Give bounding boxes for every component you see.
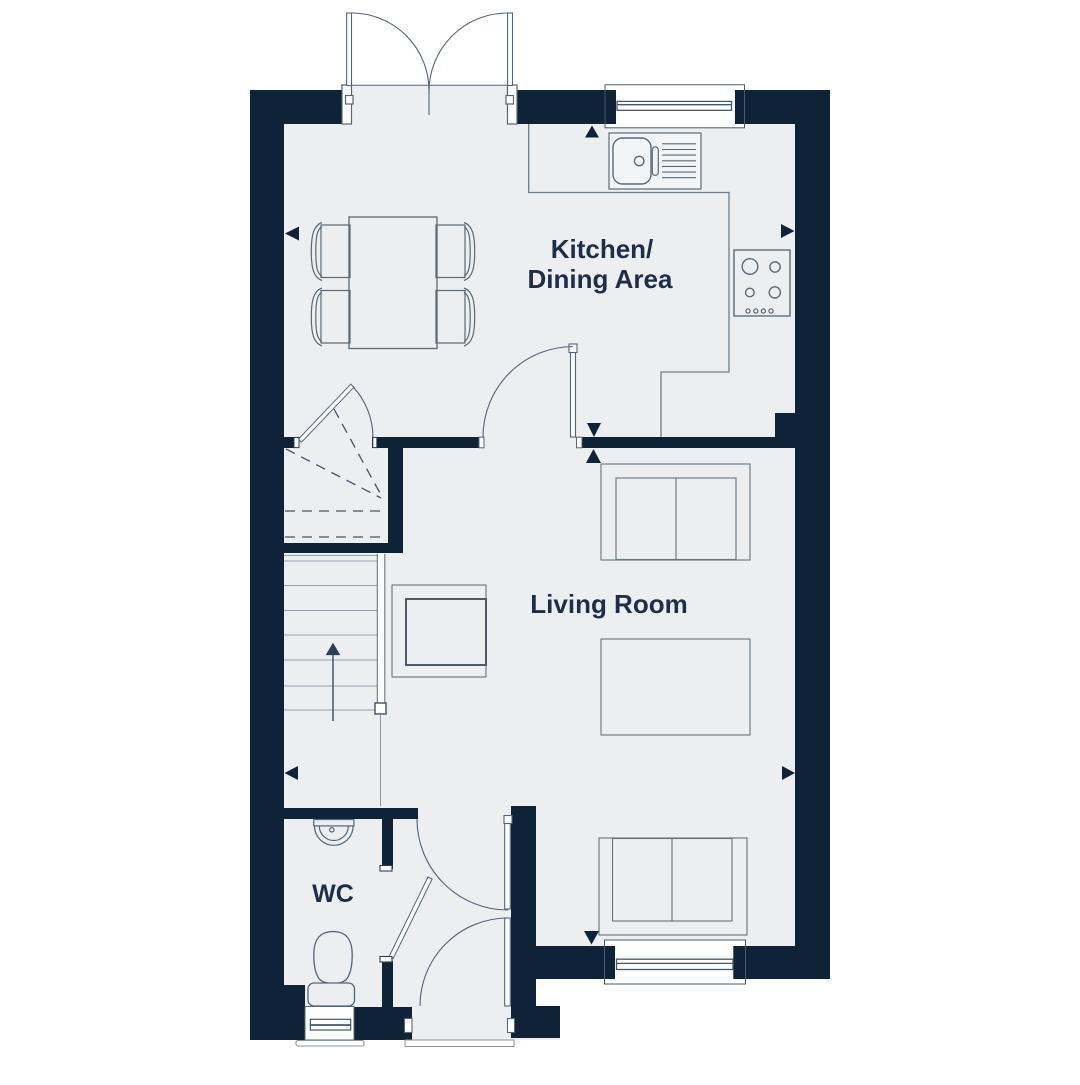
svg-text:Living Room: Living Room (530, 589, 687, 619)
svg-text:Kitchen/: Kitchen/ (551, 234, 654, 264)
svg-text:WC: WC (312, 880, 354, 908)
svg-text:Dining Area: Dining Area (528, 264, 673, 294)
